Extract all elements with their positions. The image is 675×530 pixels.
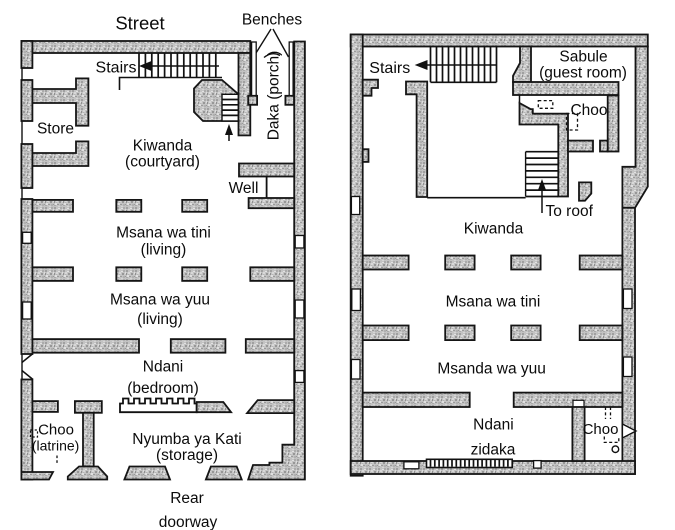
svg-text:zidaka: zidaka (471, 442, 516, 459)
svg-text:(storage): (storage) (156, 447, 218, 464)
svg-text:Choo: Choo (38, 422, 74, 439)
svg-text:Choo: Choo (583, 421, 619, 438)
svg-text:Ndani: Ndani (143, 359, 184, 376)
svg-text:Msana wa tini: Msana wa tini (446, 294, 541, 311)
svg-text:Nyumba ya Kati: Nyumba ya Kati (132, 431, 241, 448)
svg-text:Benches: Benches (242, 12, 303, 29)
svg-text:(guest room): (guest room) (539, 65, 627, 82)
svg-text:Daka (porch): Daka (porch) (266, 51, 283, 141)
svg-text:(latrine): (latrine) (32, 438, 79, 454)
svg-text:Stairs: Stairs (369, 60, 410, 77)
svg-text:Msana wa tini: Msana wa tini (116, 225, 211, 242)
svg-text:(courtyard): (courtyard) (125, 154, 200, 171)
svg-text:Sabule: Sabule (559, 49, 607, 66)
svg-text:Msanda wa yuu: Msanda wa yuu (437, 361, 546, 378)
svg-text:To roof: To roof (546, 203, 594, 220)
svg-text:Well: Well (229, 180, 259, 197)
svg-text:Street: Street (115, 13, 164, 34)
svg-text:(living): (living) (141, 242, 187, 259)
svg-text:Store: Store (37, 121, 74, 138)
svg-text:Stairs: Stairs (96, 60, 137, 77)
svg-text:Choo: Choo (570, 102, 607, 119)
svg-text:Rear: Rear (170, 490, 204, 507)
svg-text:(bedroom): (bedroom) (127, 380, 199, 397)
svg-text:(living): (living) (137, 311, 183, 328)
svg-text:Kiwanda: Kiwanda (464, 221, 524, 238)
svg-text:Msana wa yuu: Msana wa yuu (110, 292, 210, 309)
svg-text:doorway: doorway (159, 514, 218, 530)
svg-text:Ndani: Ndani (473, 417, 514, 434)
svg-text:Kiwanda: Kiwanda (133, 138, 193, 155)
